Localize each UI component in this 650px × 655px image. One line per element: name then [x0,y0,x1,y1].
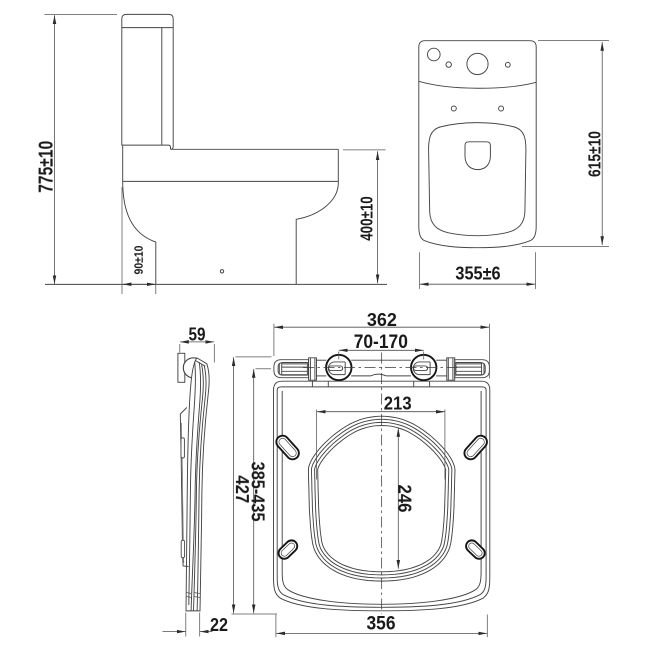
svg-text:362: 362 [367,309,397,330]
svg-text:775±10: 775±10 [36,141,58,193]
svg-text:213: 213 [384,392,412,413]
svg-text:246: 246 [394,485,415,513]
svg-text:356: 356 [367,614,396,635]
svg-text:355±6: 355±6 [455,262,500,283]
svg-text:70-170: 70-170 [354,331,408,353]
svg-text:22: 22 [210,615,228,635]
svg-text:400±10: 400±10 [357,196,377,241]
svg-text:90±10: 90±10 [132,245,146,274]
svg-text:615±10: 615±10 [585,131,605,177]
svg-text:59: 59 [189,325,206,345]
svg-text:427: 427 [232,475,253,503]
